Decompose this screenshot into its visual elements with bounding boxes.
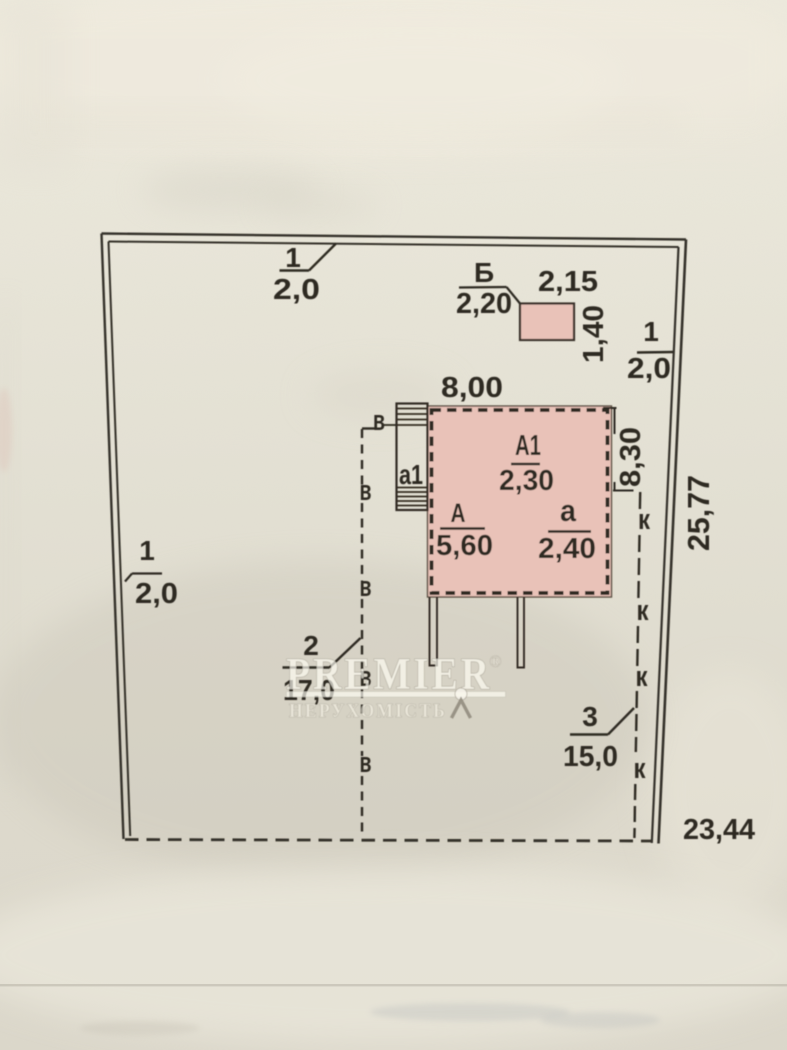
- svg-text:1: 1: [139, 535, 155, 566]
- svg-text:к: к: [637, 595, 649, 627]
- svg-text:2,20: 2,20: [456, 288, 512, 320]
- svg-text:23,44: 23,44: [683, 814, 755, 846]
- svg-text:в: в: [360, 475, 372, 507]
- svg-text:А1: А1: [515, 430, 541, 462]
- svg-text:2,40: 2,40: [538, 533, 596, 565]
- svg-text:2,30: 2,30: [499, 465, 554, 497]
- svg-text:к: к: [636, 661, 648, 693]
- svg-text:1: 1: [285, 242, 301, 273]
- svg-text:5,60: 5,60: [436, 530, 493, 562]
- svg-text:25,77: 25,77: [681, 475, 716, 551]
- svg-text:А: А: [451, 498, 466, 528]
- svg-text:к: к: [638, 504, 650, 536]
- svg-text:2,0: 2,0: [273, 274, 320, 306]
- svg-text:2,0: 2,0: [627, 353, 671, 385]
- svg-text:в: в: [373, 405, 385, 437]
- svg-text:а: а: [560, 493, 577, 528]
- svg-text:8,30: 8,30: [615, 427, 647, 487]
- svg-text:3: 3: [582, 701, 598, 732]
- svg-text:Б: Б: [474, 257, 494, 288]
- svg-text:а1: а1: [399, 459, 423, 490]
- svg-text:2,0: 2,0: [135, 578, 178, 610]
- svg-text:1: 1: [643, 316, 659, 347]
- svg-text:15,0: 15,0: [563, 741, 618, 773]
- svg-text:®: ®: [489, 652, 502, 671]
- svg-text:в: в: [360, 747, 372, 779]
- svg-text:8,00: 8,00: [441, 372, 503, 404]
- svg-text:1,40: 1,40: [578, 305, 610, 363]
- svg-text:2,15: 2,15: [538, 266, 598, 298]
- svg-text:в: в: [360, 571, 372, 603]
- svg-text:к: к: [634, 753, 646, 785]
- svg-text:НЕРУХОМІСТЬ: НЕРУХОМІСТЬ: [289, 700, 447, 722]
